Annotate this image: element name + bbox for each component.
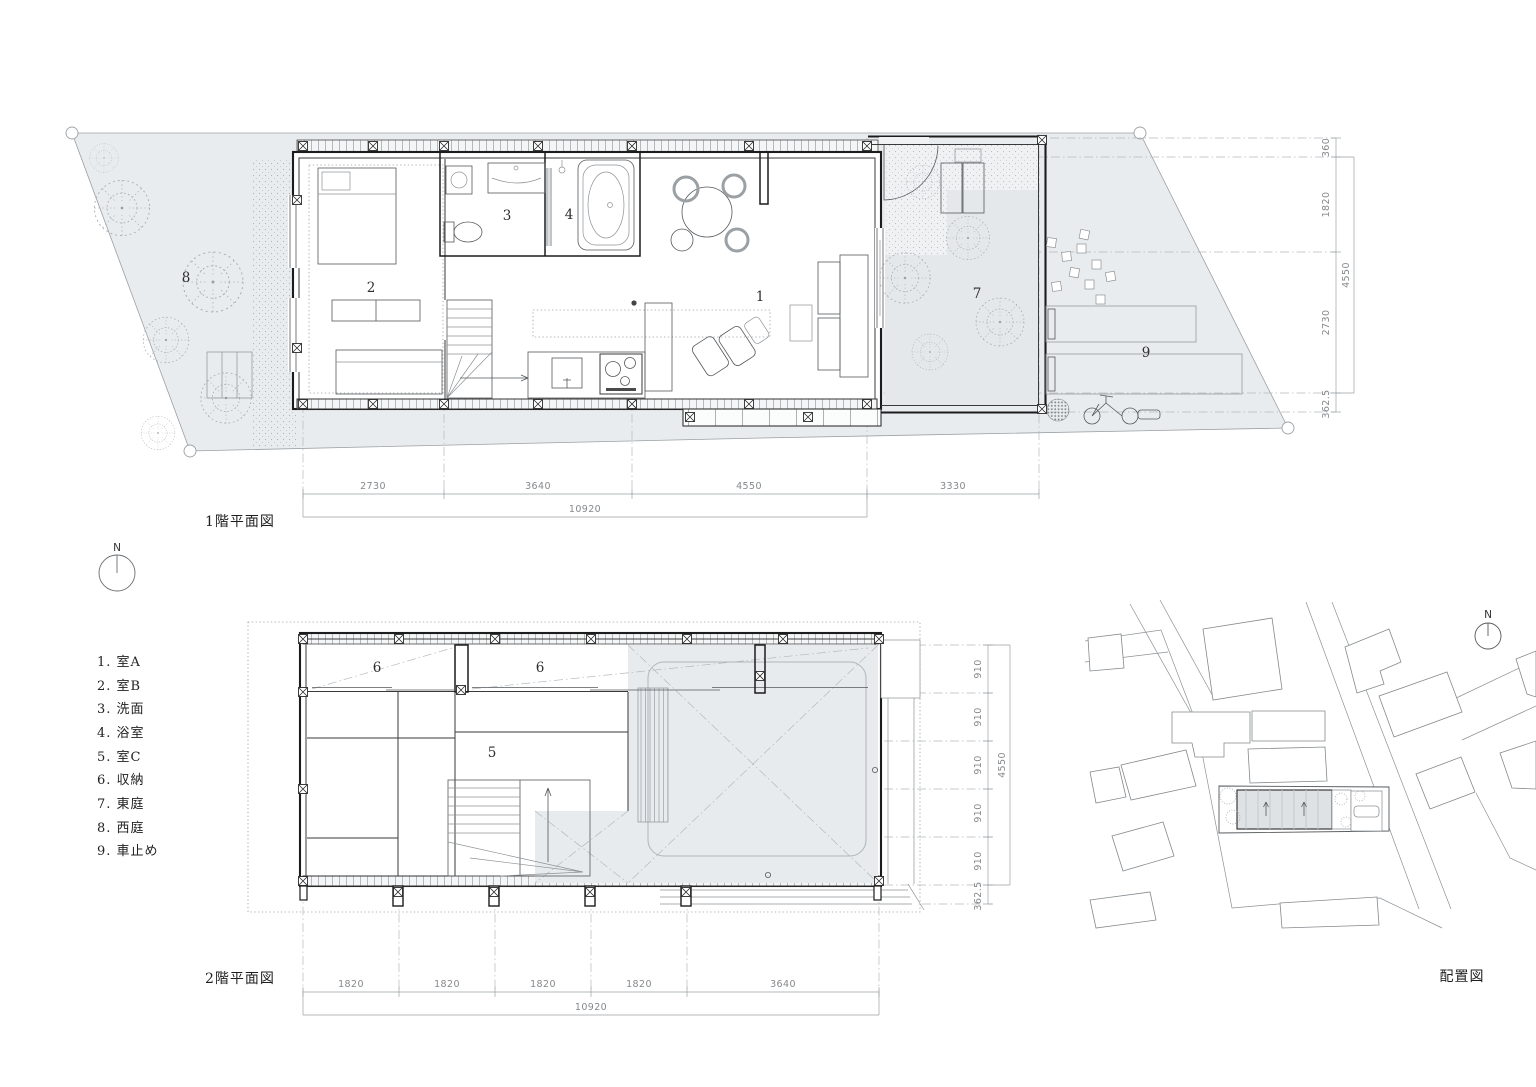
room-label-east-garden: 7 bbox=[973, 286, 982, 302]
dim-2f-overall: 4550 bbox=[997, 752, 1008, 778]
legend-item-1: 1. 室A bbox=[97, 654, 141, 670]
dim-1f-r2: 2730 bbox=[1321, 310, 1332, 336]
dims-bottom-1f: 2730 3640 4550 3330 10920 bbox=[303, 481, 1039, 517]
legend-item-4: 4. 浴室 bbox=[97, 725, 145, 741]
legend-item-6: 6. 収納 bbox=[97, 773, 145, 788]
dim-1f-b0: 2730 bbox=[360, 481, 386, 492]
legend-item-8: 8. 西庭 bbox=[97, 820, 145, 836]
room-label-closet-a: 6 bbox=[373, 660, 382, 676]
dim-2f-b1: 1820 bbox=[434, 979, 460, 990]
legend-item-2: 2. 室B bbox=[97, 678, 141, 694]
bath-sliding-door bbox=[546, 168, 552, 246]
dim-1f-b3: 3330 bbox=[940, 481, 966, 492]
room-label-room-c: 5 bbox=[488, 745, 497, 761]
posts-below-wall-2f bbox=[300, 886, 881, 906]
architectural-drawing-sheet: 1 2 3 4 7 8 9 2730 3640 4550 3330 10920 … bbox=[0, 0, 1536, 1087]
legend-item-7: 7. 東庭 bbox=[97, 796, 145, 812]
building-floor-1f bbox=[293, 152, 881, 409]
floor2-plan: 6 6 5 1820 1820 1820 1820 3640 10920 910… bbox=[205, 622, 1010, 1015]
dim-2f-b0: 1820 bbox=[338, 979, 364, 990]
dim-2f-b4: 3640 bbox=[770, 979, 796, 990]
north-label-main: N bbox=[113, 542, 121, 554]
room-label-bath: 4 bbox=[565, 207, 574, 223]
room-label-living: 1 bbox=[756, 289, 765, 305]
north-arrow-site: N bbox=[1475, 609, 1501, 649]
room-label-washroom: 3 bbox=[503, 208, 512, 224]
dim-2f-r3: 910 bbox=[973, 803, 984, 822]
neighbor-buildings bbox=[1088, 618, 1536, 928]
room-label-car-stop: 9 bbox=[1142, 345, 1151, 361]
legend-item-3: 3. 洗面 bbox=[97, 702, 145, 717]
legend-item-5: 5. 室C bbox=[97, 749, 141, 765]
floor1-title: 1階平面図 bbox=[205, 514, 275, 530]
eave-band-north-1f bbox=[297, 140, 878, 152]
dim-2f-offset: 362.5 bbox=[973, 881, 984, 910]
dim-2f-r2: 910 bbox=[973, 755, 984, 774]
dim-2f-r0: 910 bbox=[973, 659, 984, 678]
floor1-plan: 1 2 3 4 7 8 9 2730 3640 4550 3330 10920 … bbox=[66, 127, 1354, 530]
east-garden bbox=[868, 136, 1046, 413]
project-site bbox=[1219, 786, 1389, 833]
north-arrow-main: N bbox=[99, 542, 135, 591]
dim-2f-b3: 1820 bbox=[626, 979, 652, 990]
wall-band-south-1f bbox=[297, 399, 877, 409]
dim-1f-r3: 362.5 bbox=[1321, 389, 1332, 418]
dim-1f-r1: 1820 bbox=[1321, 192, 1332, 218]
site-plan-title: 配置図 bbox=[1440, 969, 1485, 985]
dim-1f-b2: 4550 bbox=[736, 481, 762, 492]
north-label-site: N bbox=[1484, 609, 1492, 621]
drawing-canvas: 1 2 3 4 7 8 9 2730 3640 4550 3330 10920 … bbox=[0, 0, 1536, 1087]
dim-2f-r1: 910 bbox=[973, 707, 984, 726]
bush bbox=[1047, 399, 1069, 421]
site-plan: N 配置図 bbox=[1085, 600, 1536, 985]
dim-2f-b2: 1820 bbox=[530, 979, 556, 990]
room-label-west-garden: 8 bbox=[182, 270, 191, 286]
dim-2f-total: 10920 bbox=[575, 1002, 607, 1013]
site-entry-court bbox=[1332, 790, 1351, 829]
dim-1f-b1: 3640 bbox=[525, 481, 551, 492]
catwalk-slats bbox=[638, 688, 668, 822]
dim-1f-total: 10920 bbox=[569, 504, 601, 515]
dim-2f-r4: 910 bbox=[973, 851, 984, 870]
south-deck bbox=[683, 409, 881, 426]
floor2-title: 2階平面図 bbox=[205, 971, 275, 987]
legend-item-9: 9. 車止め bbox=[97, 844, 159, 859]
site-carport bbox=[1351, 791, 1382, 831]
dim-1f-r0: 360 bbox=[1321, 138, 1332, 157]
room-label-closet-b: 6 bbox=[536, 660, 545, 676]
dims-right-2f: 910 910 910 910 910 362.5 4550 bbox=[973, 645, 1010, 911]
dim-1f-overall: 4550 bbox=[1341, 262, 1352, 288]
room-label-bedroom: 2 bbox=[367, 280, 376, 296]
room-legend: 1. 室A 2. 室B 3. 洗面 4. 浴室 5. 室C 6. 収納 7. 東… bbox=[97, 654, 159, 859]
dims-right-1f: 360 1820 2730 362.5 4550 bbox=[1321, 138, 1354, 419]
